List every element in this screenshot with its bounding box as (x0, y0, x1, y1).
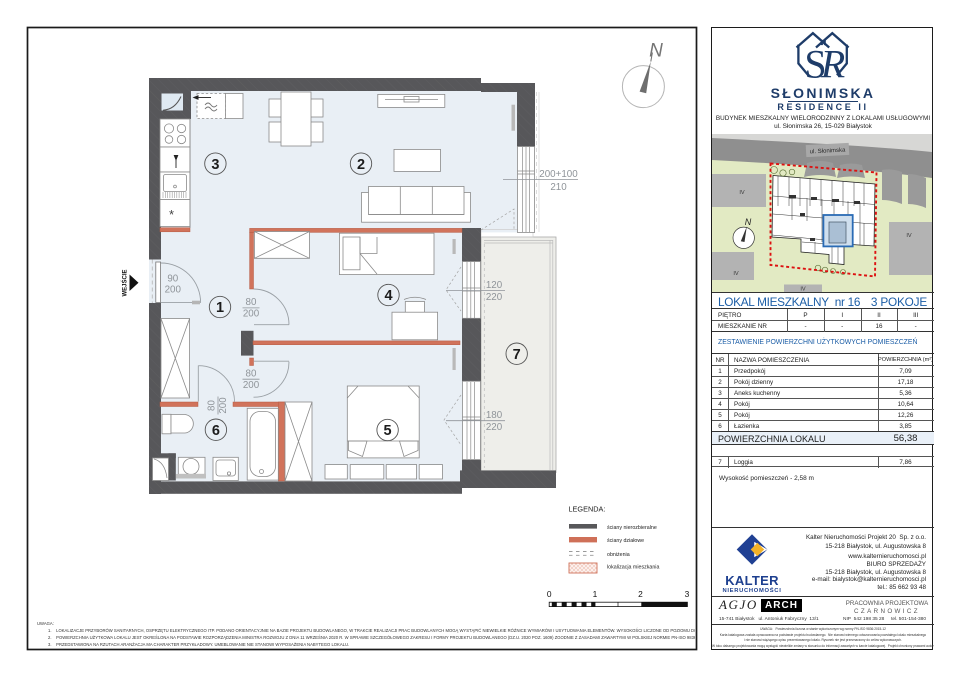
svg-text:2: 2 (638, 589, 643, 599)
svg-text:3: 3 (211, 157, 219, 173)
svg-text:5: 5 (384, 423, 392, 439)
svg-text:2: 2 (357, 157, 365, 173)
svg-text:IV: IV (739, 190, 745, 196)
svg-text:210: 210 (550, 182, 567, 193)
svg-text:N: N (649, 41, 663, 62)
svg-text:200+100: 200+100 (539, 169, 578, 180)
svg-text:1: 1 (216, 300, 224, 316)
svg-text:80: 80 (246, 297, 257, 308)
svg-text:IV: IV (733, 271, 739, 277)
svg-text:6: 6 (212, 423, 220, 439)
svg-text:R: R (820, 41, 845, 81)
svg-text:220: 220 (486, 422, 503, 433)
svg-text:lokalizacja mieszkania: lokalizacja mieszkania (607, 565, 659, 571)
svg-text:obniżenia: obniżenia (607, 552, 630, 558)
svg-text:90: 90 (167, 274, 178, 285)
svg-text:*: * (169, 207, 174, 222)
svg-text:200: 200 (218, 397, 229, 414)
svg-text:1: 1 (593, 589, 598, 599)
svg-text:200: 200 (243, 309, 260, 320)
svg-text:80: 80 (206, 400, 217, 411)
svg-text:120: 120 (486, 280, 503, 291)
svg-text:7: 7 (513, 347, 521, 363)
svg-text:80: 80 (246, 369, 257, 380)
svg-text:180: 180 (486, 410, 503, 421)
svg-text:WEJŚCIE: WEJŚCIE (122, 269, 129, 296)
svg-text:3: 3 (685, 589, 690, 599)
svg-text:N: N (745, 217, 752, 227)
svg-text:220: 220 (486, 292, 503, 303)
svg-text:4: 4 (384, 288, 392, 304)
svg-text:ściany nierozbieralne: ściany nierozbieralne (607, 525, 657, 531)
svg-text:200: 200 (165, 285, 182, 296)
svg-text:200: 200 (243, 380, 260, 391)
svg-text:LEGENDA:: LEGENDA: (569, 505, 606, 514)
svg-text:0: 0 (547, 589, 552, 599)
svg-text:IV: IV (906, 233, 912, 239)
svg-text:ściany działowe: ściany działowe (607, 538, 644, 544)
